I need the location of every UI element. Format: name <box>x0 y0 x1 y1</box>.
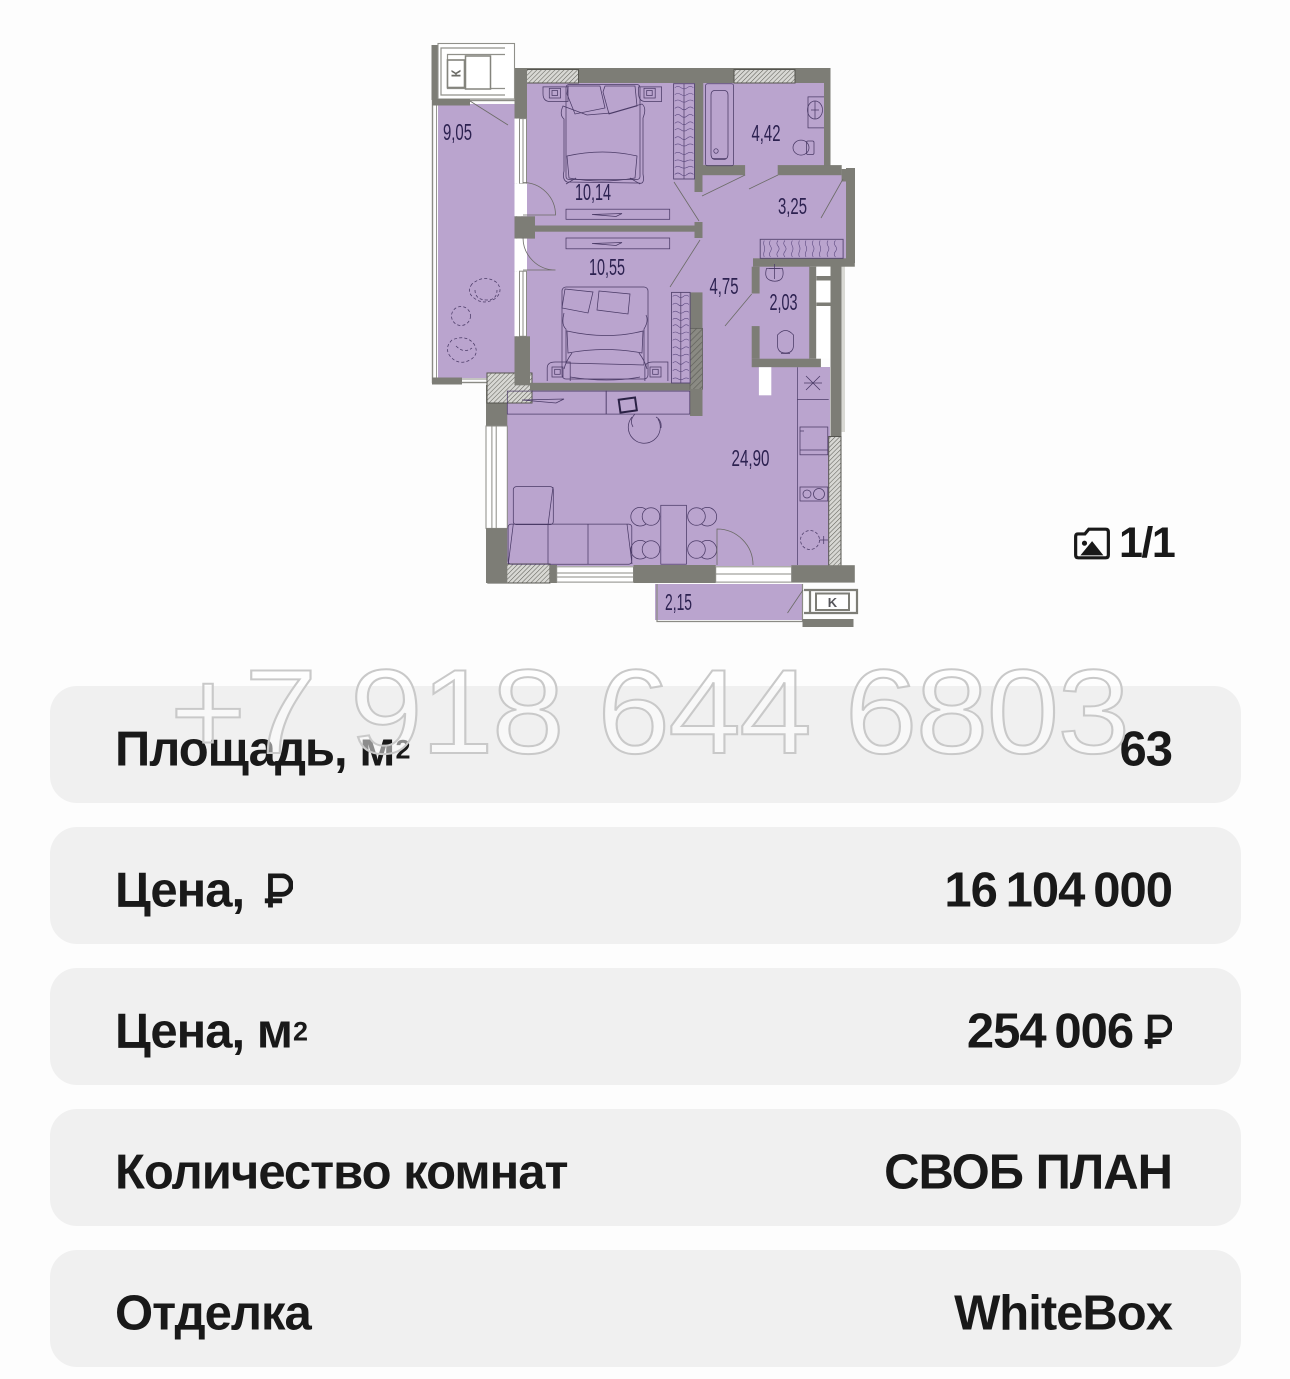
svg-text:2,03: 2,03 <box>770 289 798 315</box>
svg-text:4,42: 4,42 <box>752 120 781 146</box>
svg-text:24,90: 24,90 <box>732 445 770 471</box>
svg-text:К: К <box>450 69 464 77</box>
svg-text:10,14: 10,14 <box>575 179 611 205</box>
svg-text:2,15: 2,15 <box>665 589 692 615</box>
svg-text:4,75: 4,75 <box>710 273 739 299</box>
svg-text:9,05: 9,05 <box>443 119 472 145</box>
svg-text:10,55: 10,55 <box>589 254 625 280</box>
svg-text:K: K <box>828 595 838 610</box>
svg-text:3,25: 3,25 <box>778 193 807 219</box>
